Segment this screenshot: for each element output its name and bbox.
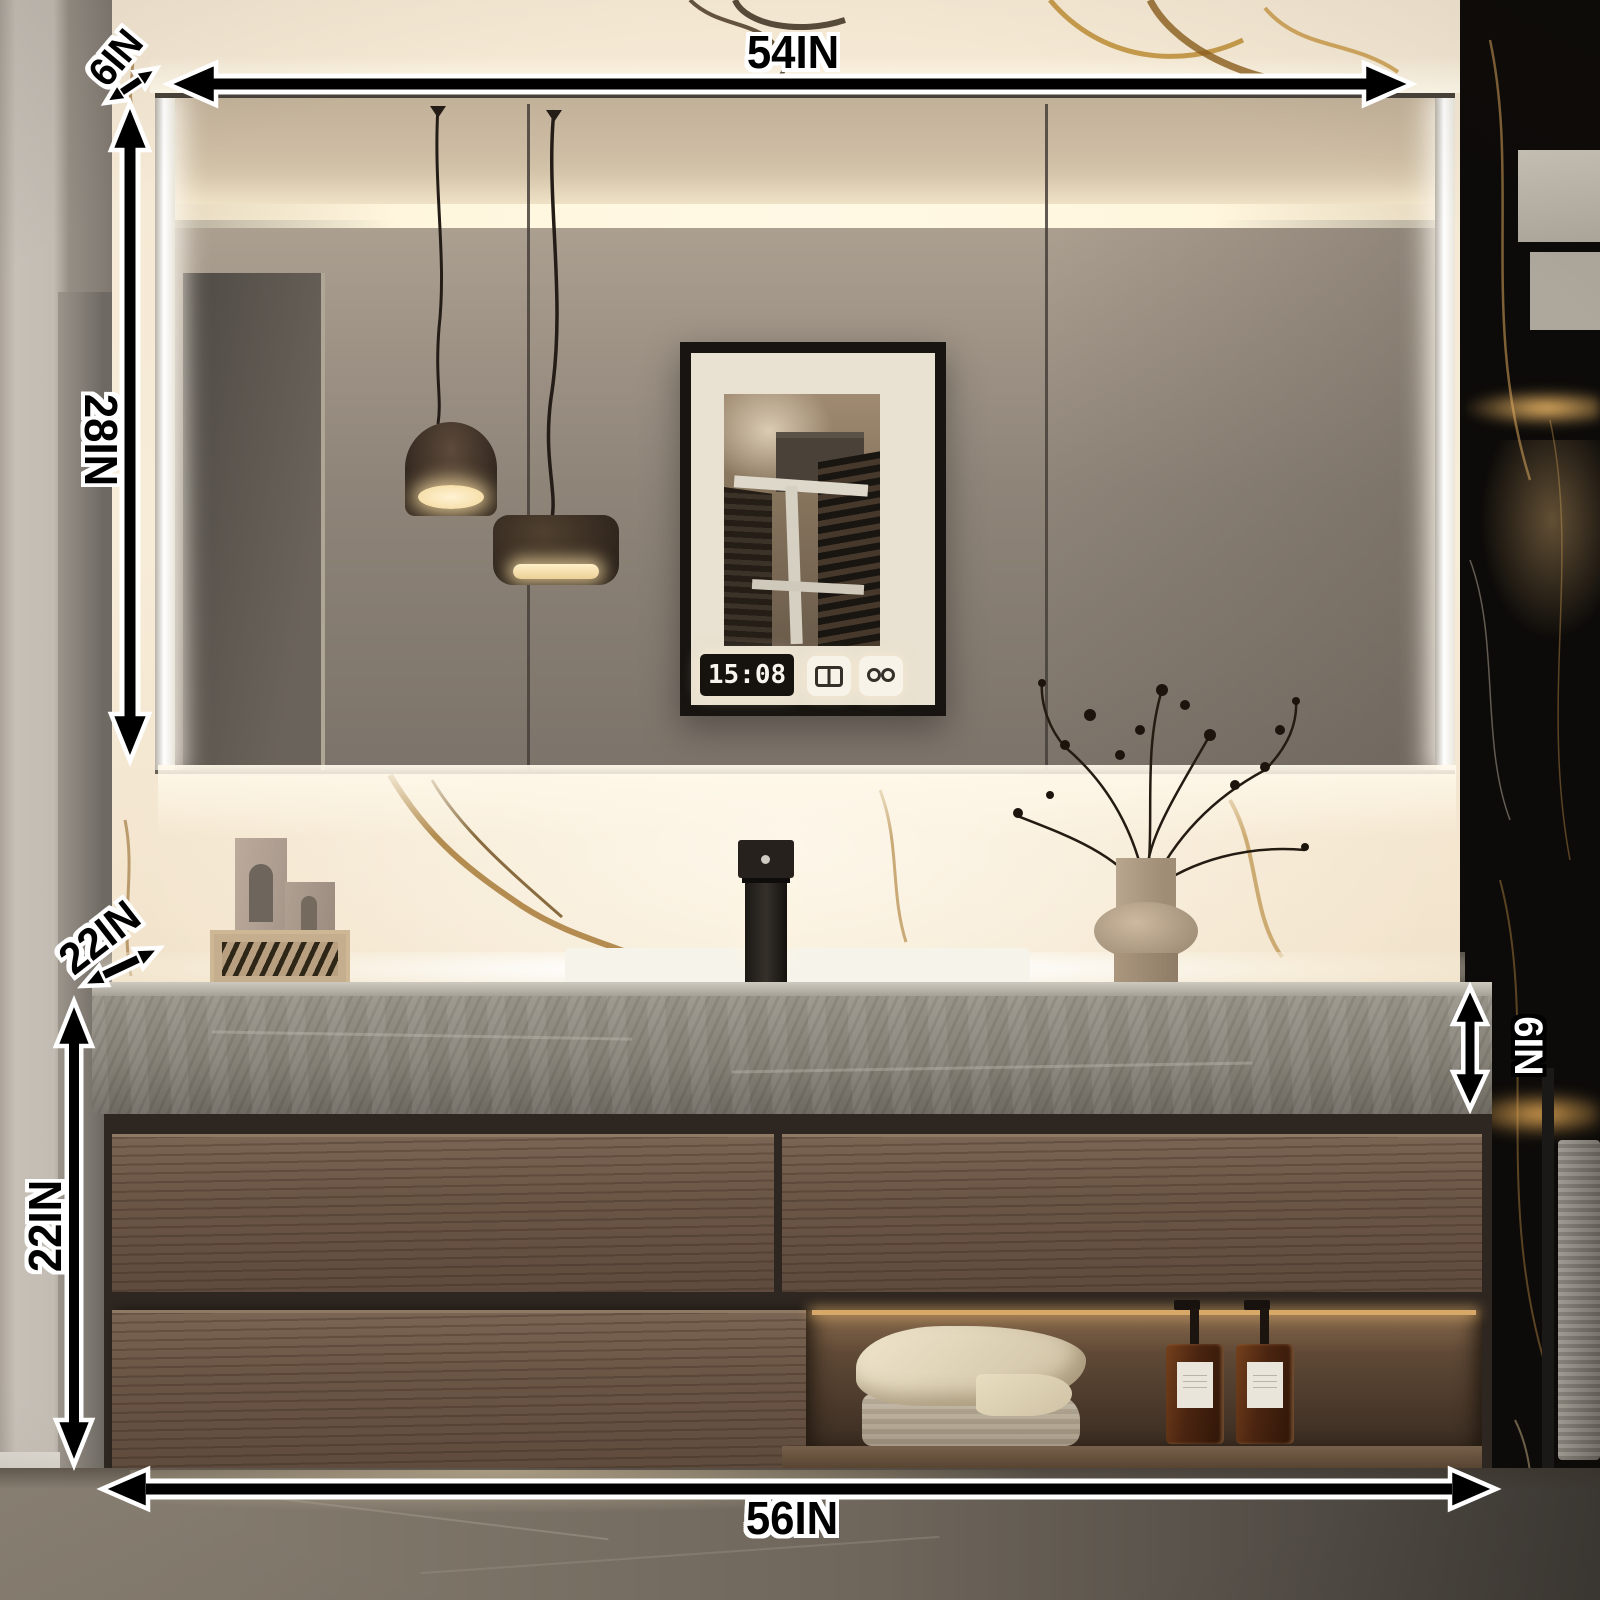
lamp-glow — [418, 485, 484, 509]
mirror-touch-button — [859, 656, 903, 696]
stone-streak — [212, 1030, 632, 1040]
photo-shutter-slats — [818, 450, 880, 646]
countertop-surface — [92, 982, 1492, 996]
arch-cutout — [249, 864, 273, 922]
hanging-towel — [1558, 1140, 1600, 1460]
pendant-lamp-dome — [405, 422, 497, 516]
pump-stem — [1260, 1308, 1269, 1344]
vase-neck — [1116, 858, 1176, 908]
shelf-led-glow — [1466, 390, 1600, 426]
soap-dispenser — [1166, 1300, 1224, 1444]
bottle-body — [1166, 1344, 1224, 1444]
mirror-clock-display: 15:08 — [700, 654, 794, 696]
faucet-button — [761, 855, 770, 864]
lamp-glow — [513, 564, 599, 579]
reflection-shading — [1048, 228, 1435, 770]
decor-sculpture — [205, 838, 355, 988]
bottle-label — [1247, 1362, 1283, 1408]
left-wall — [0, 0, 112, 1600]
black-faucet — [738, 840, 794, 988]
slatted-tray — [210, 930, 350, 988]
shelf-item-box — [1518, 150, 1600, 242]
bathroom-vanity-product-image: 15:08 — [0, 0, 1600, 1600]
towel-fold — [976, 1374, 1072, 1416]
drawer-bottom-left — [112, 1310, 806, 1468]
reflected-cove-light — [167, 204, 1443, 230]
sculpture-block — [285, 882, 335, 934]
cabinet-door-seam — [527, 104, 530, 770]
shelf-bottom-board — [782, 1446, 1482, 1470]
stone-streak — [732, 1061, 1252, 1073]
marble-highlight — [1480, 440, 1600, 640]
countertop-stone-fascia — [92, 996, 1492, 1114]
double-circle-icon — [867, 668, 895, 684]
led-strip-right — [1435, 98, 1455, 770]
label-mirror-height: 28IN — [78, 394, 124, 486]
pendant-lamp-drum — [493, 515, 619, 585]
under-mirror-glow — [158, 765, 1456, 837]
label-vanity-width: 56IN — [746, 1495, 838, 1541]
folded-towels — [856, 1322, 1086, 1448]
mirror-touch-button — [807, 656, 851, 696]
led-strip-left — [155, 98, 175, 770]
reflected-ceiling — [155, 98, 1455, 220]
drawer-top-left — [112, 1134, 774, 1292]
cabinet-door-seam — [1045, 104, 1048, 770]
photo-building — [724, 486, 772, 646]
arch-cutout — [301, 896, 317, 930]
label-cabinet-height: 22IN — [22, 1180, 68, 1272]
toe-kick-light — [130, 1470, 1050, 1514]
label-mirror-width: 54IN — [747, 29, 839, 75]
soap-dispenser — [1236, 1300, 1294, 1444]
artwork-photo — [724, 394, 880, 646]
bottle-body — [1236, 1344, 1294, 1444]
photo-railing — [785, 486, 803, 644]
drawer-top-right — [782, 1134, 1482, 1292]
floor-vein — [421, 1536, 940, 1574]
split-square-icon — [815, 666, 843, 687]
led-mirror-cabinet: 15:08 — [155, 93, 1455, 774]
flower-vase — [1094, 858, 1198, 988]
clock-time: 15:08 — [708, 660, 786, 690]
shelf-item-box — [1530, 252, 1600, 330]
label-countertop-thickness: 6IN — [1508, 1016, 1548, 1075]
bottle-label — [1177, 1362, 1213, 1408]
vase-ring — [1094, 902, 1198, 960]
reflected-doorway — [183, 273, 325, 770]
faucet-body — [745, 883, 787, 988]
sculpture-block — [235, 838, 287, 934]
tray-slats — [222, 942, 338, 976]
pump-stem — [1190, 1308, 1199, 1344]
